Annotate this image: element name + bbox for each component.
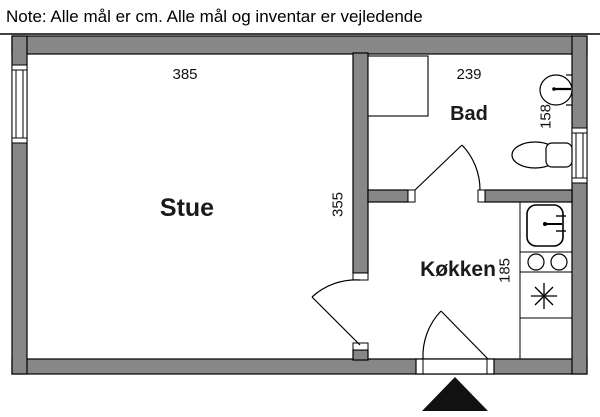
kitchen-sink-icon xyxy=(527,205,566,246)
toilet-icon xyxy=(512,142,572,168)
wall-divider-upper xyxy=(353,53,368,273)
wall-bad-left xyxy=(368,190,408,202)
door-stue-kokken-icon xyxy=(312,280,360,345)
two-burner-hob-icon xyxy=(528,254,567,270)
jamb-divider-top xyxy=(353,273,368,280)
window-left-icon xyxy=(12,65,27,143)
dim-stue-width: 385 xyxy=(160,66,210,83)
dim-bad-depth: 158 xyxy=(538,92,555,142)
window-right-sash xyxy=(576,133,583,178)
door-entrance-swing xyxy=(423,311,441,359)
entrance-threshold xyxy=(416,359,494,374)
wall-bad-right xyxy=(485,190,572,202)
dim-stue-depth: 355 xyxy=(330,180,347,230)
door-entrance-icon xyxy=(423,311,488,359)
door-stue-leaf xyxy=(312,297,360,345)
jamb-bad-left xyxy=(408,190,415,202)
shower-area-icon xyxy=(368,56,428,116)
wall-bottom xyxy=(12,359,587,374)
hob-burner-right xyxy=(551,254,567,270)
jamb-bad-right xyxy=(478,190,485,202)
hob-burner-left xyxy=(528,254,544,270)
wall-right xyxy=(572,36,587,374)
room-label-bad: Bad xyxy=(429,103,509,126)
walls xyxy=(12,36,587,374)
jamb-divider-bottom xyxy=(353,343,368,350)
door-stue-swing xyxy=(312,280,360,297)
fridge-icon xyxy=(531,283,557,309)
entrance-opening xyxy=(416,359,494,374)
door-bad-icon xyxy=(415,145,480,190)
dim-bad-width: 239 xyxy=(444,66,494,83)
room-label-kokken: Køkken xyxy=(398,258,518,282)
floorplan-page: Note: Alle mål er cm. Alle mål og invent… xyxy=(0,0,600,417)
door-bad-swing xyxy=(462,145,480,190)
entrance-triangle-icon xyxy=(422,377,488,411)
window-left-sash xyxy=(16,70,23,138)
room-label-stue: Stue xyxy=(137,194,237,223)
door-entrance-leaf xyxy=(441,311,488,359)
wall-top xyxy=(12,36,587,54)
door-bad-leaf xyxy=(415,145,462,190)
toilet-tank xyxy=(546,143,572,167)
window-right-icon xyxy=(572,128,587,183)
wall-divider-stub xyxy=(353,350,368,360)
floorplan-canvas xyxy=(0,0,600,417)
